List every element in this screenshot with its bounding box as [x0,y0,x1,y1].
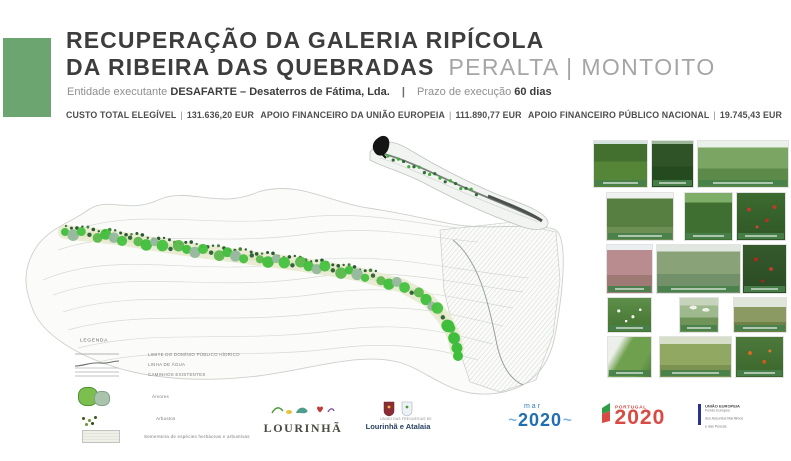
parish-logo: UNIÃO DAS FREGUESIAS DE Lourinhã e Atala… [356,401,440,431]
poster-root: RECUPERAÇÃO DA GALERIA RIPÍCOLA DA RIBEI… [0,0,791,461]
legend-label: CAMINHOS EXISTENTES [148,371,206,376]
parish-crests-icon [381,401,415,417]
finance-sep: | [713,110,715,120]
portugal-year: 2020 [615,408,668,427]
legend-item: LIMITE DO DOMÍNIO PÚBLICO HÍDRICO [74,349,324,359]
hatch-rect-icon [74,430,120,443]
plant-photo [684,192,733,241]
title-location: PERALTA | MONTOITO [448,54,715,80]
term-value: 60 dias [514,86,551,98]
finance-value: 19.745,43 EUR [720,110,782,120]
green-accent-block [3,38,51,117]
plant-photo [697,140,789,188]
plant-photo [593,140,648,188]
plant-label [653,180,692,186]
mar-label: mar [483,403,583,410]
plant-photo [742,244,787,294]
legend-label: Arbustos [156,415,175,420]
plant-photo [607,297,652,333]
finance-label: APOIO FINANCEIRO DA UNIÃO EUROPEIA [260,110,445,120]
finance-label: APOIO FINANCEIRO PÚBLICO NACIONAL [528,110,709,120]
legend-label: LINHA DE ÁGUA [148,361,185,366]
plant-photo [659,336,732,378]
plant-label [609,370,650,376]
legend-label: Sementeira de espécies herbáceas e arbus… [144,433,250,438]
plant-label [681,325,717,331]
finance-row: CUSTO TOTAL ELEGÍVEL|131.636,20 EUR APOI… [66,110,782,120]
plant-label [735,325,785,331]
plant-label [737,370,782,376]
portugal-label: PORTUGAL [615,404,647,408]
plant-label [738,233,784,239]
portugal2020-logo: PORTUGAL 2020 [588,402,680,427]
mar-wave-icon: ~ [508,416,517,426]
project-title: RECUPERAÇÃO DA GALERIA RIPÍCOLA DA RIBEI… [66,27,716,81]
legend-label: Árvores [152,393,169,398]
eu-fund-line: e das Pescas [705,425,743,429]
divider: | [402,86,405,98]
lourinha-logo: LOURINHÃ [262,402,344,436]
tree-circles-icon [78,387,128,406]
plant-label [609,325,650,331]
entity-name: DESAFARTE – Desaterros de Fátima, Lda. [170,86,389,98]
legend-item: CAMINHOS EXISTENTES [74,369,324,379]
legend-label: LIMITE DO DOMÍNIO PÚBLICO HÍDRICO [148,351,240,356]
parish-name: Lourinhã e Atalaia [356,422,440,431]
legend-item: LINHA DE ÁGUA [74,359,324,369]
eu-logo: UNIÃO EUROPEIA Fundo Europeu dos Assunto… [698,404,790,433]
mar2020-logo: mar ~ 2020 ~ [497,403,583,431]
plant-photo [606,244,653,294]
finance-value: 131.636,20 EUR [187,110,254,120]
legend-title: LEGENDA [80,337,231,343]
finance-label: CUSTO TOTAL ELEGÍVEL [66,110,176,120]
parish-small-text: UNIÃO DAS FREGUESIAS DE [380,417,415,419]
title-line1: RECUPERAÇÃO DA GALERIA RIPÍCOLA [66,27,544,53]
lourinha-wordmark: LOURINHÃ [262,421,344,436]
finance-sep: | [180,110,182,120]
portugal-flag-icon [601,402,612,424]
plant-label [658,286,739,292]
plant-label [595,180,646,186]
entity-label: Entidade executante [67,86,167,98]
finance-value: 111.890,77 EUR [455,110,521,120]
eu-fund-line: dos Assuntos Marítimos [705,417,743,421]
finance-item: APOIO FINANCEIRO PÚBLICO NACIONAL|19.745… [528,110,782,120]
mar-wave-icon: ~ [563,416,572,426]
term-label: Prazo de execução [417,86,511,98]
eu-flag-icon [698,404,701,425]
path-lines-icon [74,370,124,378]
eu-fund-line: Fundo Europeu [705,409,743,413]
mar-year: 2020 [518,410,562,431]
plant-photo [656,244,741,294]
plant-photo [606,192,674,241]
finance-sep: | [449,110,451,120]
plant-photo [736,192,786,241]
shrub-dots-icon [82,413,132,423]
finance-item: CUSTO TOTAL ELEGÍVEL|131.636,20 EUR [66,110,254,120]
eu-title: UNIÃO EUROPEIA [705,404,747,407]
plant-label [661,370,730,376]
title-line2: DA RIBEIRA DAS QUEBRADAS [66,54,434,80]
plant-photo [679,297,719,333]
plant-label [608,286,651,292]
plant-label [744,286,785,292]
plant-photo [607,336,652,378]
plant-photo [735,336,784,378]
water-line-icon [74,359,124,369]
entity-line: Entidade executante DESAFARTE – Desaterr… [67,86,552,98]
plant-label [608,233,672,239]
plant-photo [651,140,694,188]
boundary-line-icon [74,351,124,357]
plant-label [686,233,731,239]
plant-photo [733,297,787,333]
finance-item: APOIO FINANCEIRO DA UNIÃO EUROPEIA|111.8… [260,110,521,120]
plant-label [699,180,787,186]
lourinha-icons [270,404,336,415]
